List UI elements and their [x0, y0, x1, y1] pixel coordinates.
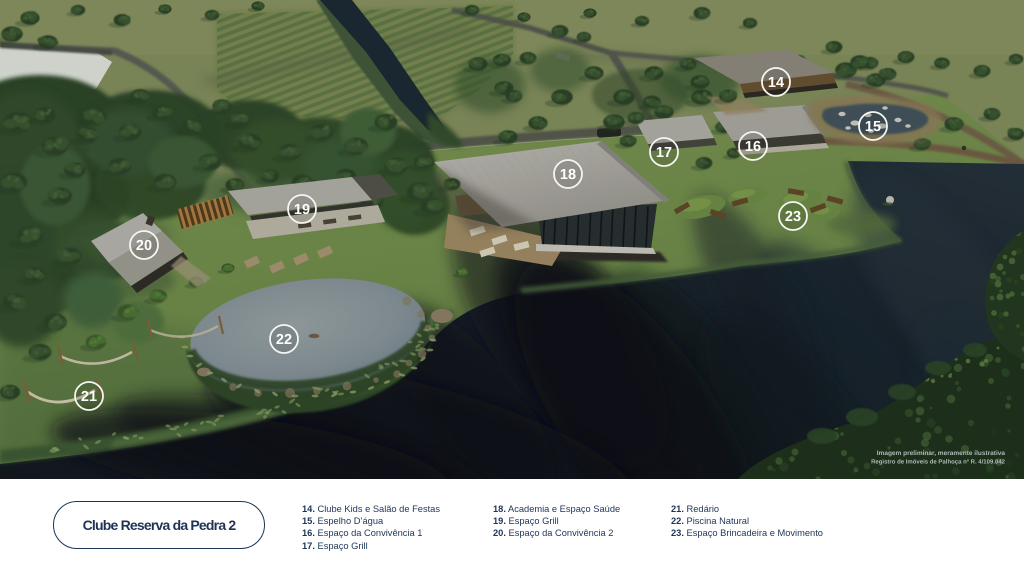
svg-text:Imagem preliminar, meramente i: Imagem preliminar, meramente ilustrativa — [877, 450, 1006, 457]
svg-text:17: 17 — [656, 145, 672, 161]
svg-text:21: 21 — [81, 389, 97, 405]
svg-text:18: 18 — [560, 167, 576, 183]
svg-text:23: 23 — [785, 209, 801, 225]
svg-text:22: 22 — [276, 332, 292, 348]
svg-text:Registro de Imóveis de Palhoça: Registro de Imóveis de Palhoça nº R. 4/1… — [871, 459, 1006, 466]
svg-text:19: 19 — [294, 202, 310, 218]
svg-text:15: 15 — [865, 119, 881, 135]
svg-text:16: 16 — [745, 139, 761, 155]
svg-text:20: 20 — [136, 238, 152, 254]
svg-text:14: 14 — [768, 75, 784, 91]
